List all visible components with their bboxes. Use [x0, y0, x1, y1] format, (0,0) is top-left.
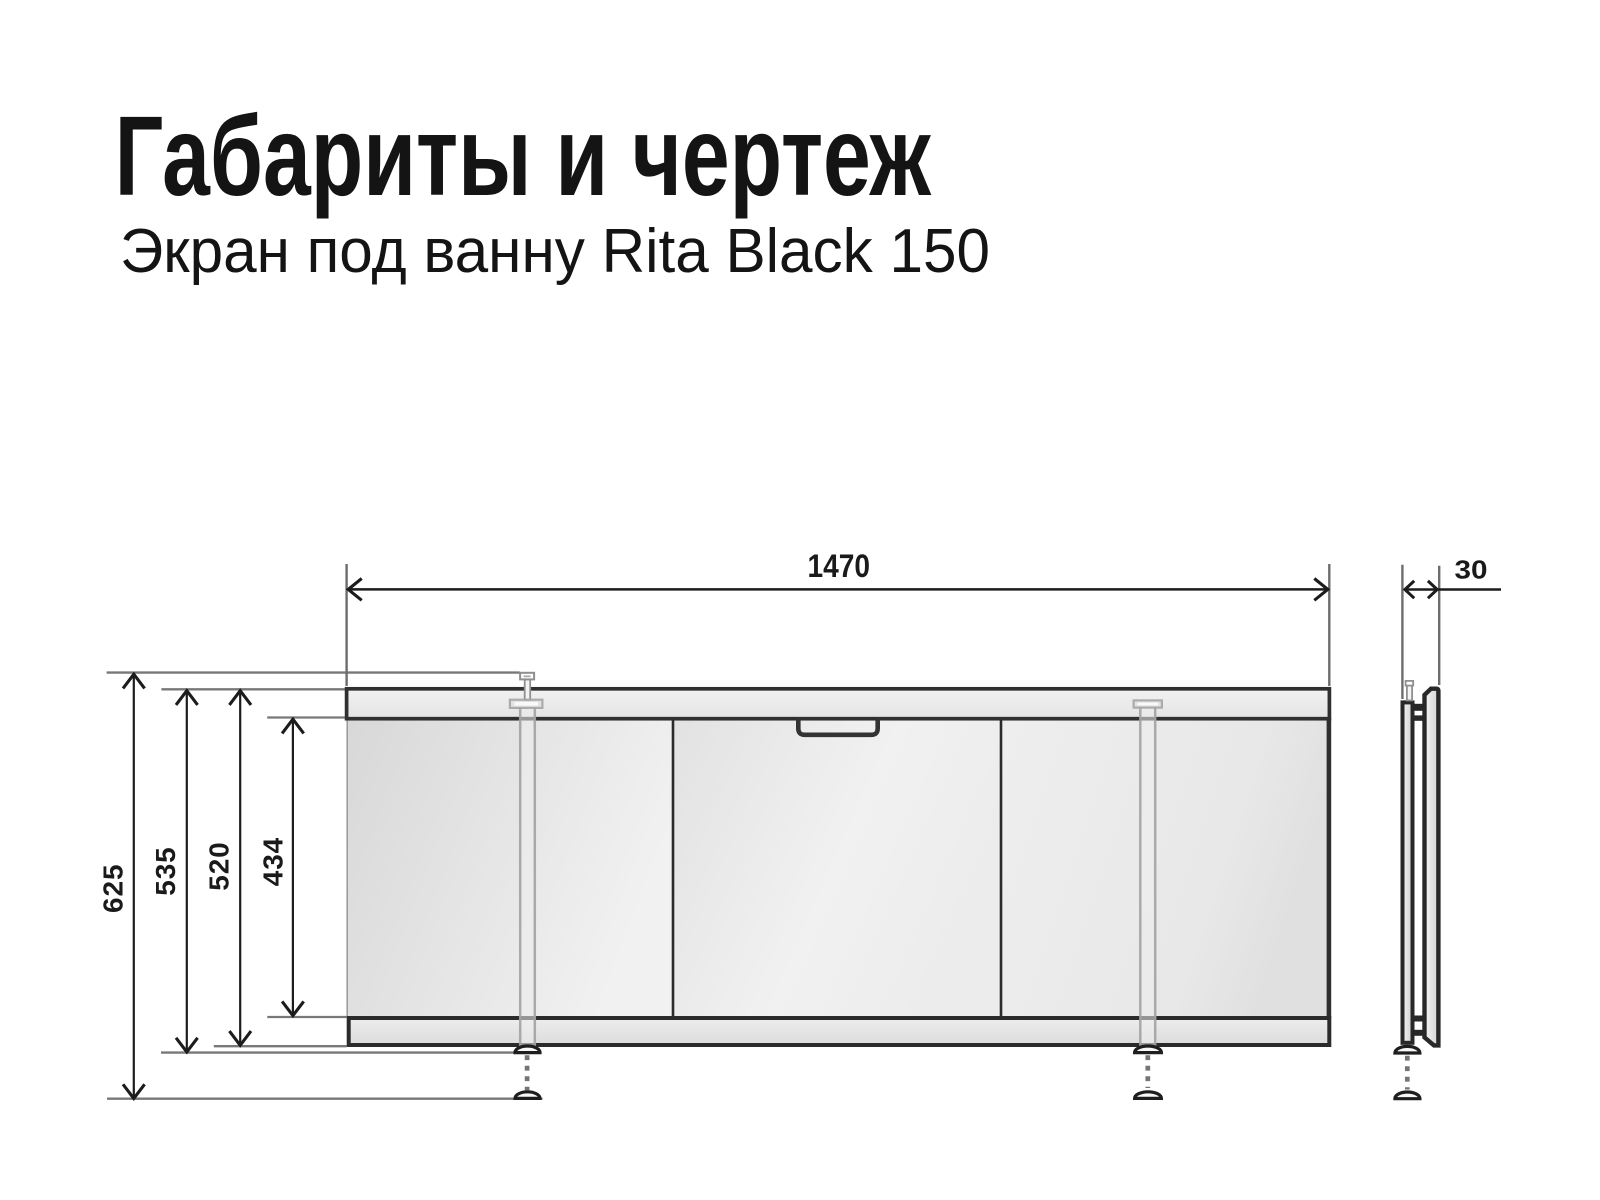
- svg-text:1470: 1470: [807, 548, 870, 584]
- svg-text:Экран под ванну Rita Black 150: Экран под ванну Rita Black 150: [120, 217, 990, 286]
- svg-text:30: 30: [1455, 555, 1488, 585]
- svg-text:Габариты и чертеж: Габариты и чертеж: [115, 93, 932, 219]
- svg-text:434: 434: [258, 837, 289, 886]
- svg-text:535: 535: [150, 847, 181, 896]
- svg-text:520: 520: [204, 842, 235, 891]
- svg-text:625: 625: [98, 864, 129, 913]
